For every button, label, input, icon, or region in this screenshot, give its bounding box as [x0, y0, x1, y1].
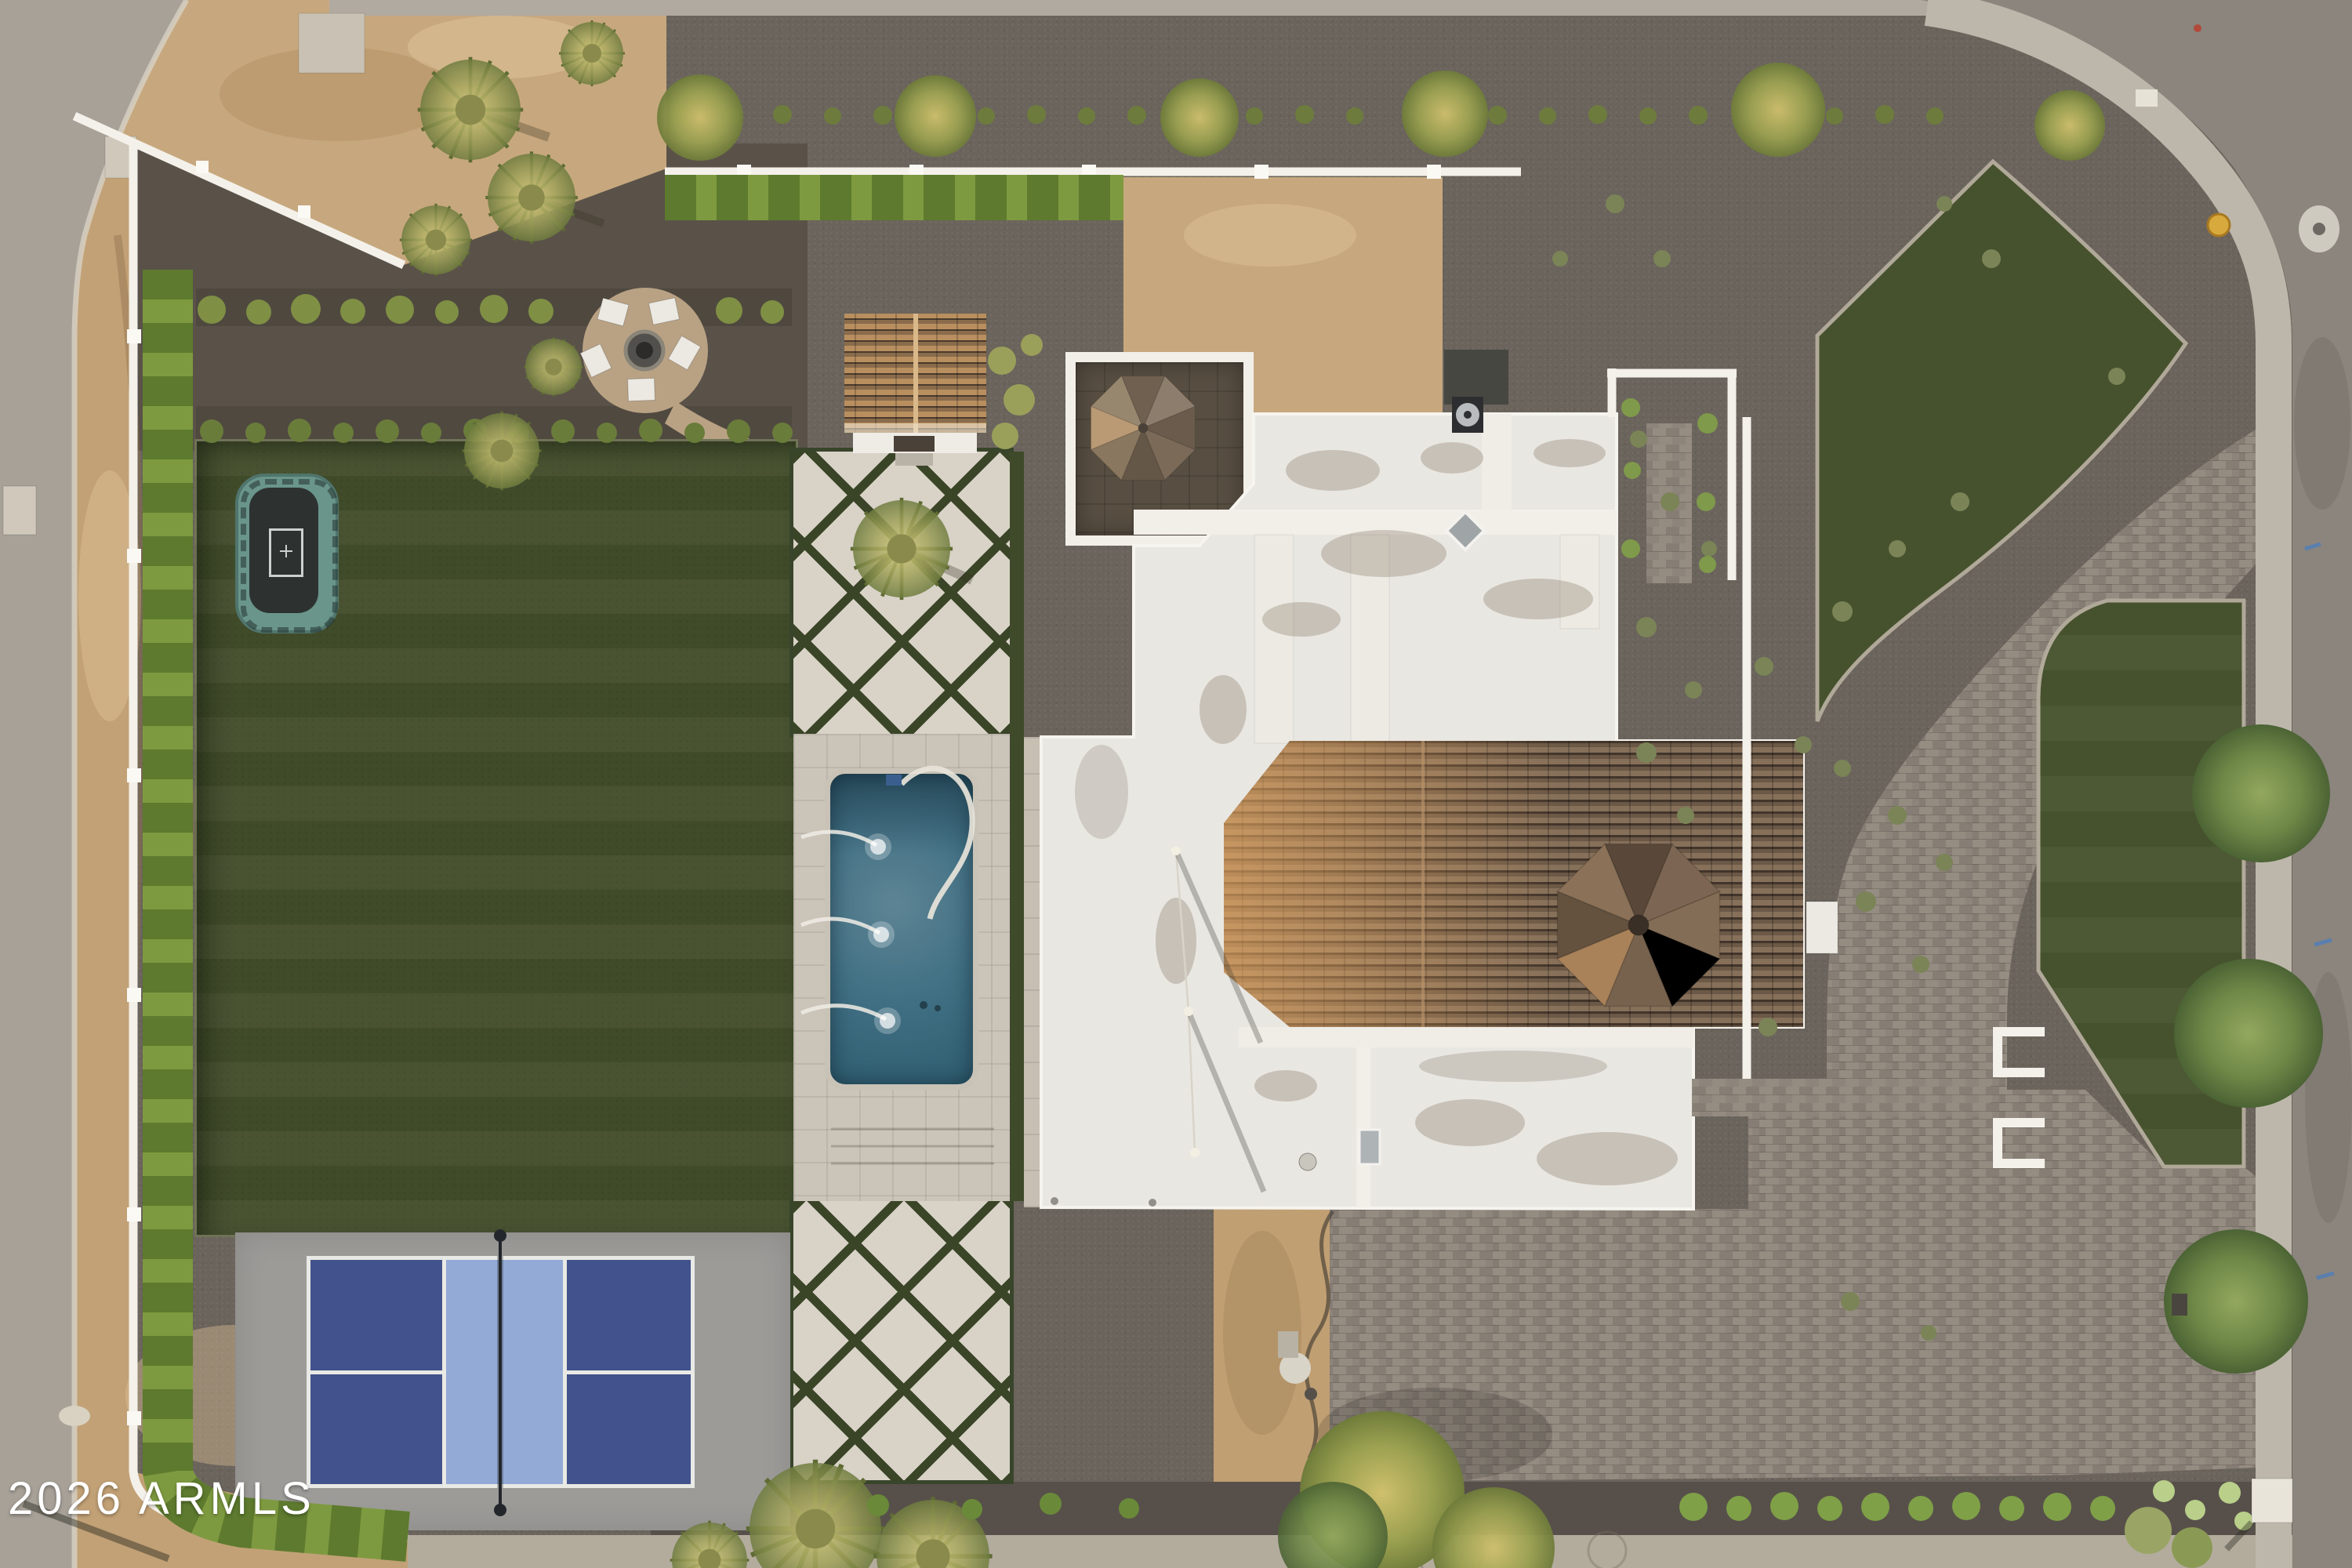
- casita-ridge: [913, 314, 918, 433]
- roof-duct-1: [1254, 535, 1294, 743]
- turret-roof: [1558, 844, 1720, 1007]
- deck-steps: [831, 1129, 994, 1163]
- lower-parapet-band: [1239, 1027, 1693, 1047]
- palm-cluster-nw: [400, 20, 625, 490]
- watermark: 2026 ARMLS: [8, 1472, 315, 1525]
- survey-mark: [2194, 24, 2201, 32]
- bottom-palms: [670, 1460, 993, 1568]
- casita: [844, 314, 986, 466]
- street-trees: [2164, 724, 2330, 1374]
- east-roof-box: [1806, 902, 1838, 953]
- pickleball-net: [494, 1229, 506, 1516]
- aerial-photo-scene: 2026 ARMLS: [0, 0, 2352, 1568]
- fire-hydrant: [2208, 214, 2230, 236]
- roof-parapet-rib: [1482, 414, 1512, 510]
- front-trees: [1278, 1388, 1555, 1568]
- pool-palm: [851, 498, 972, 600]
- utility-marker: [2136, 89, 2158, 107]
- detail-layer: [0, 0, 2352, 1568]
- casita-step: [895, 453, 933, 466]
- pool-cleaner-head: [886, 775, 902, 786]
- rect-skylight: [1359, 1130, 1380, 1164]
- lower-parapet-rib: [1356, 1047, 1370, 1207]
- pool-details: [801, 768, 994, 1163]
- gate-pillars: [1998, 1032, 2045, 1163]
- rock: [59, 1406, 90, 1426]
- wall-nw-diagonal: [74, 116, 404, 265]
- roof-vent: [1299, 1153, 1316, 1171]
- jet-splashes: [865, 833, 901, 1034]
- casita-door: [894, 436, 935, 452]
- tile-roof-sunlit: [1224, 741, 1803, 1027]
- gate-walkway: [1692, 1079, 1990, 1116]
- pergola: [1444, 350, 1508, 405]
- casita-grasses: [988, 334, 1043, 449]
- fire-pit-set: [580, 298, 700, 401]
- mailbox: [2252, 1479, 2292, 1523]
- road-paint-marks: [2305, 544, 2334, 1278]
- patio-umbrella: [1091, 376, 1196, 481]
- bed-shrub-row: [867, 1480, 2253, 1568]
- driveway-grate: [2172, 1294, 2187, 1316]
- pool-cleaner-hose: [902, 768, 972, 919]
